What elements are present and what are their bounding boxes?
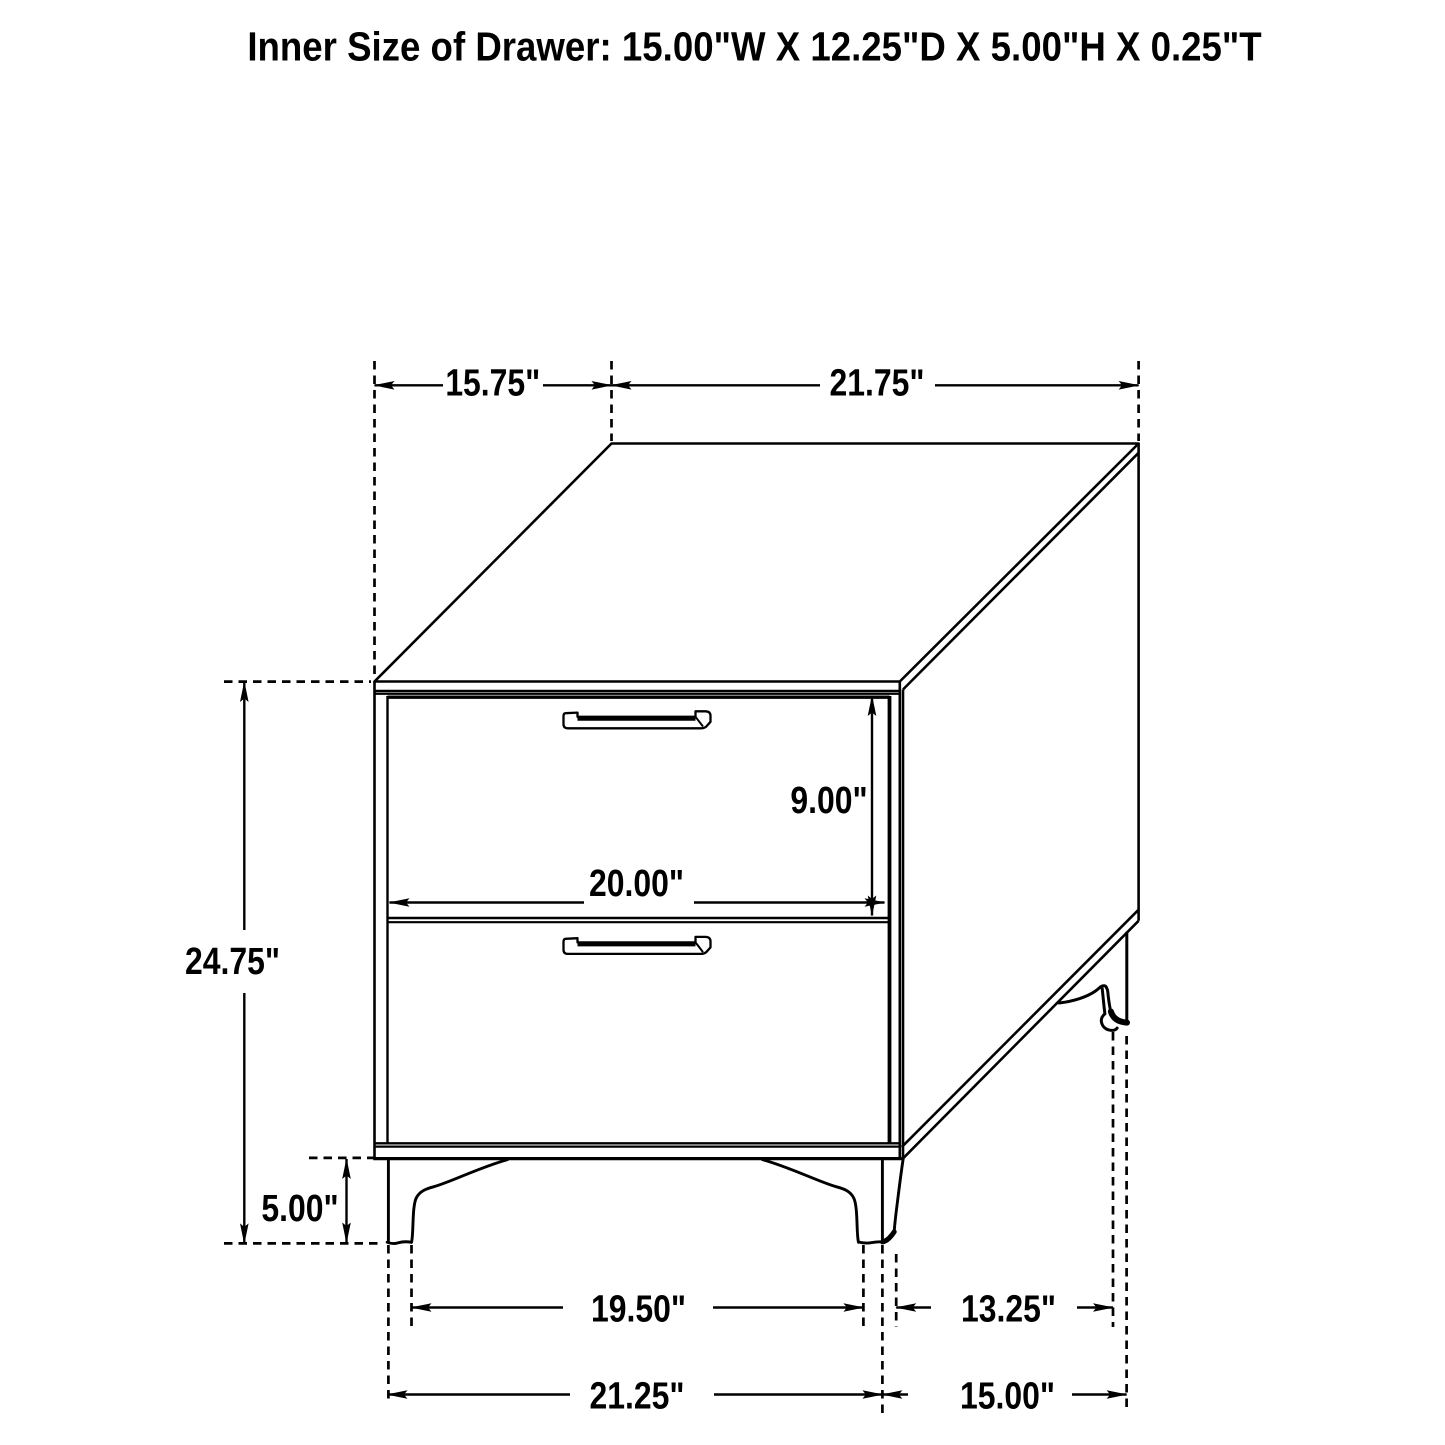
svg-text:24.75": 24.75"	[185, 940, 280, 982]
svg-text:20.00": 20.00"	[589, 862, 684, 904]
svg-text:9.00": 9.00"	[790, 779, 867, 821]
svg-text:5.00": 5.00"	[261, 1187, 338, 1229]
svg-text:13.25": 13.25"	[961, 1288, 1056, 1330]
svg-text:21.75": 21.75"	[830, 362, 925, 404]
svg-text:19.50": 19.50"	[591, 1288, 686, 1330]
svg-text:15.00": 15.00"	[960, 1375, 1055, 1417]
svg-text:21.25": 21.25"	[590, 1375, 685, 1417]
svg-text:Inner Size of Drawer: 15.00"W: Inner Size of Drawer: 15.00"W X 12.25"D …	[247, 25, 1262, 70]
svg-text:15.75": 15.75"	[445, 362, 540, 404]
